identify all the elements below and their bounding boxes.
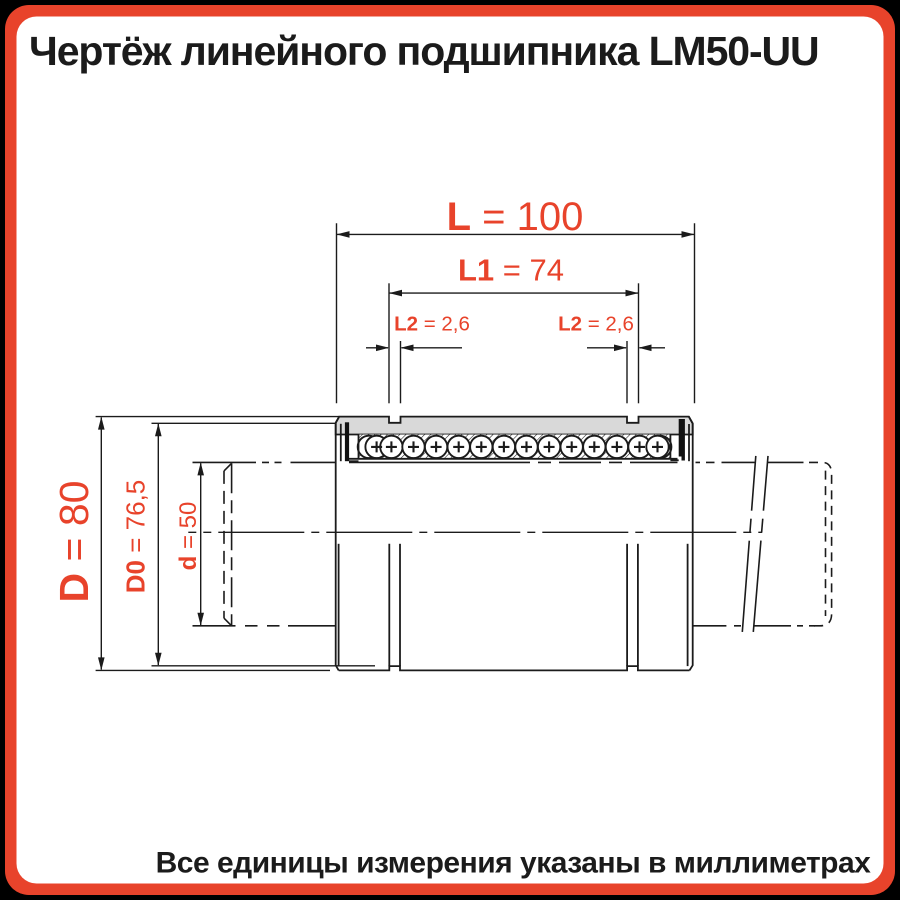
svg-text:L1 = 74: L1 = 74: [458, 253, 564, 288]
svg-text:L2 = 2,6: L2 = 2,6: [558, 313, 634, 336]
svg-text:D0 = 76,5: D0 = 76,5: [121, 480, 151, 593]
svg-text:L = 100: L = 100: [447, 195, 584, 239]
svg-text:d = 50: d = 50: [175, 502, 202, 571]
svg-text:D = 80: D = 80: [51, 481, 97, 603]
svg-text:L2 = 2,6: L2 = 2,6: [394, 313, 470, 336]
svg-text:Чертёж линейного подшипника LM: Чертёж линейного подшипника LM50-UU: [29, 28, 819, 74]
svg-text:Все единицы измерения указаны: Все единицы измерения указаны в миллимет…: [156, 847, 872, 880]
